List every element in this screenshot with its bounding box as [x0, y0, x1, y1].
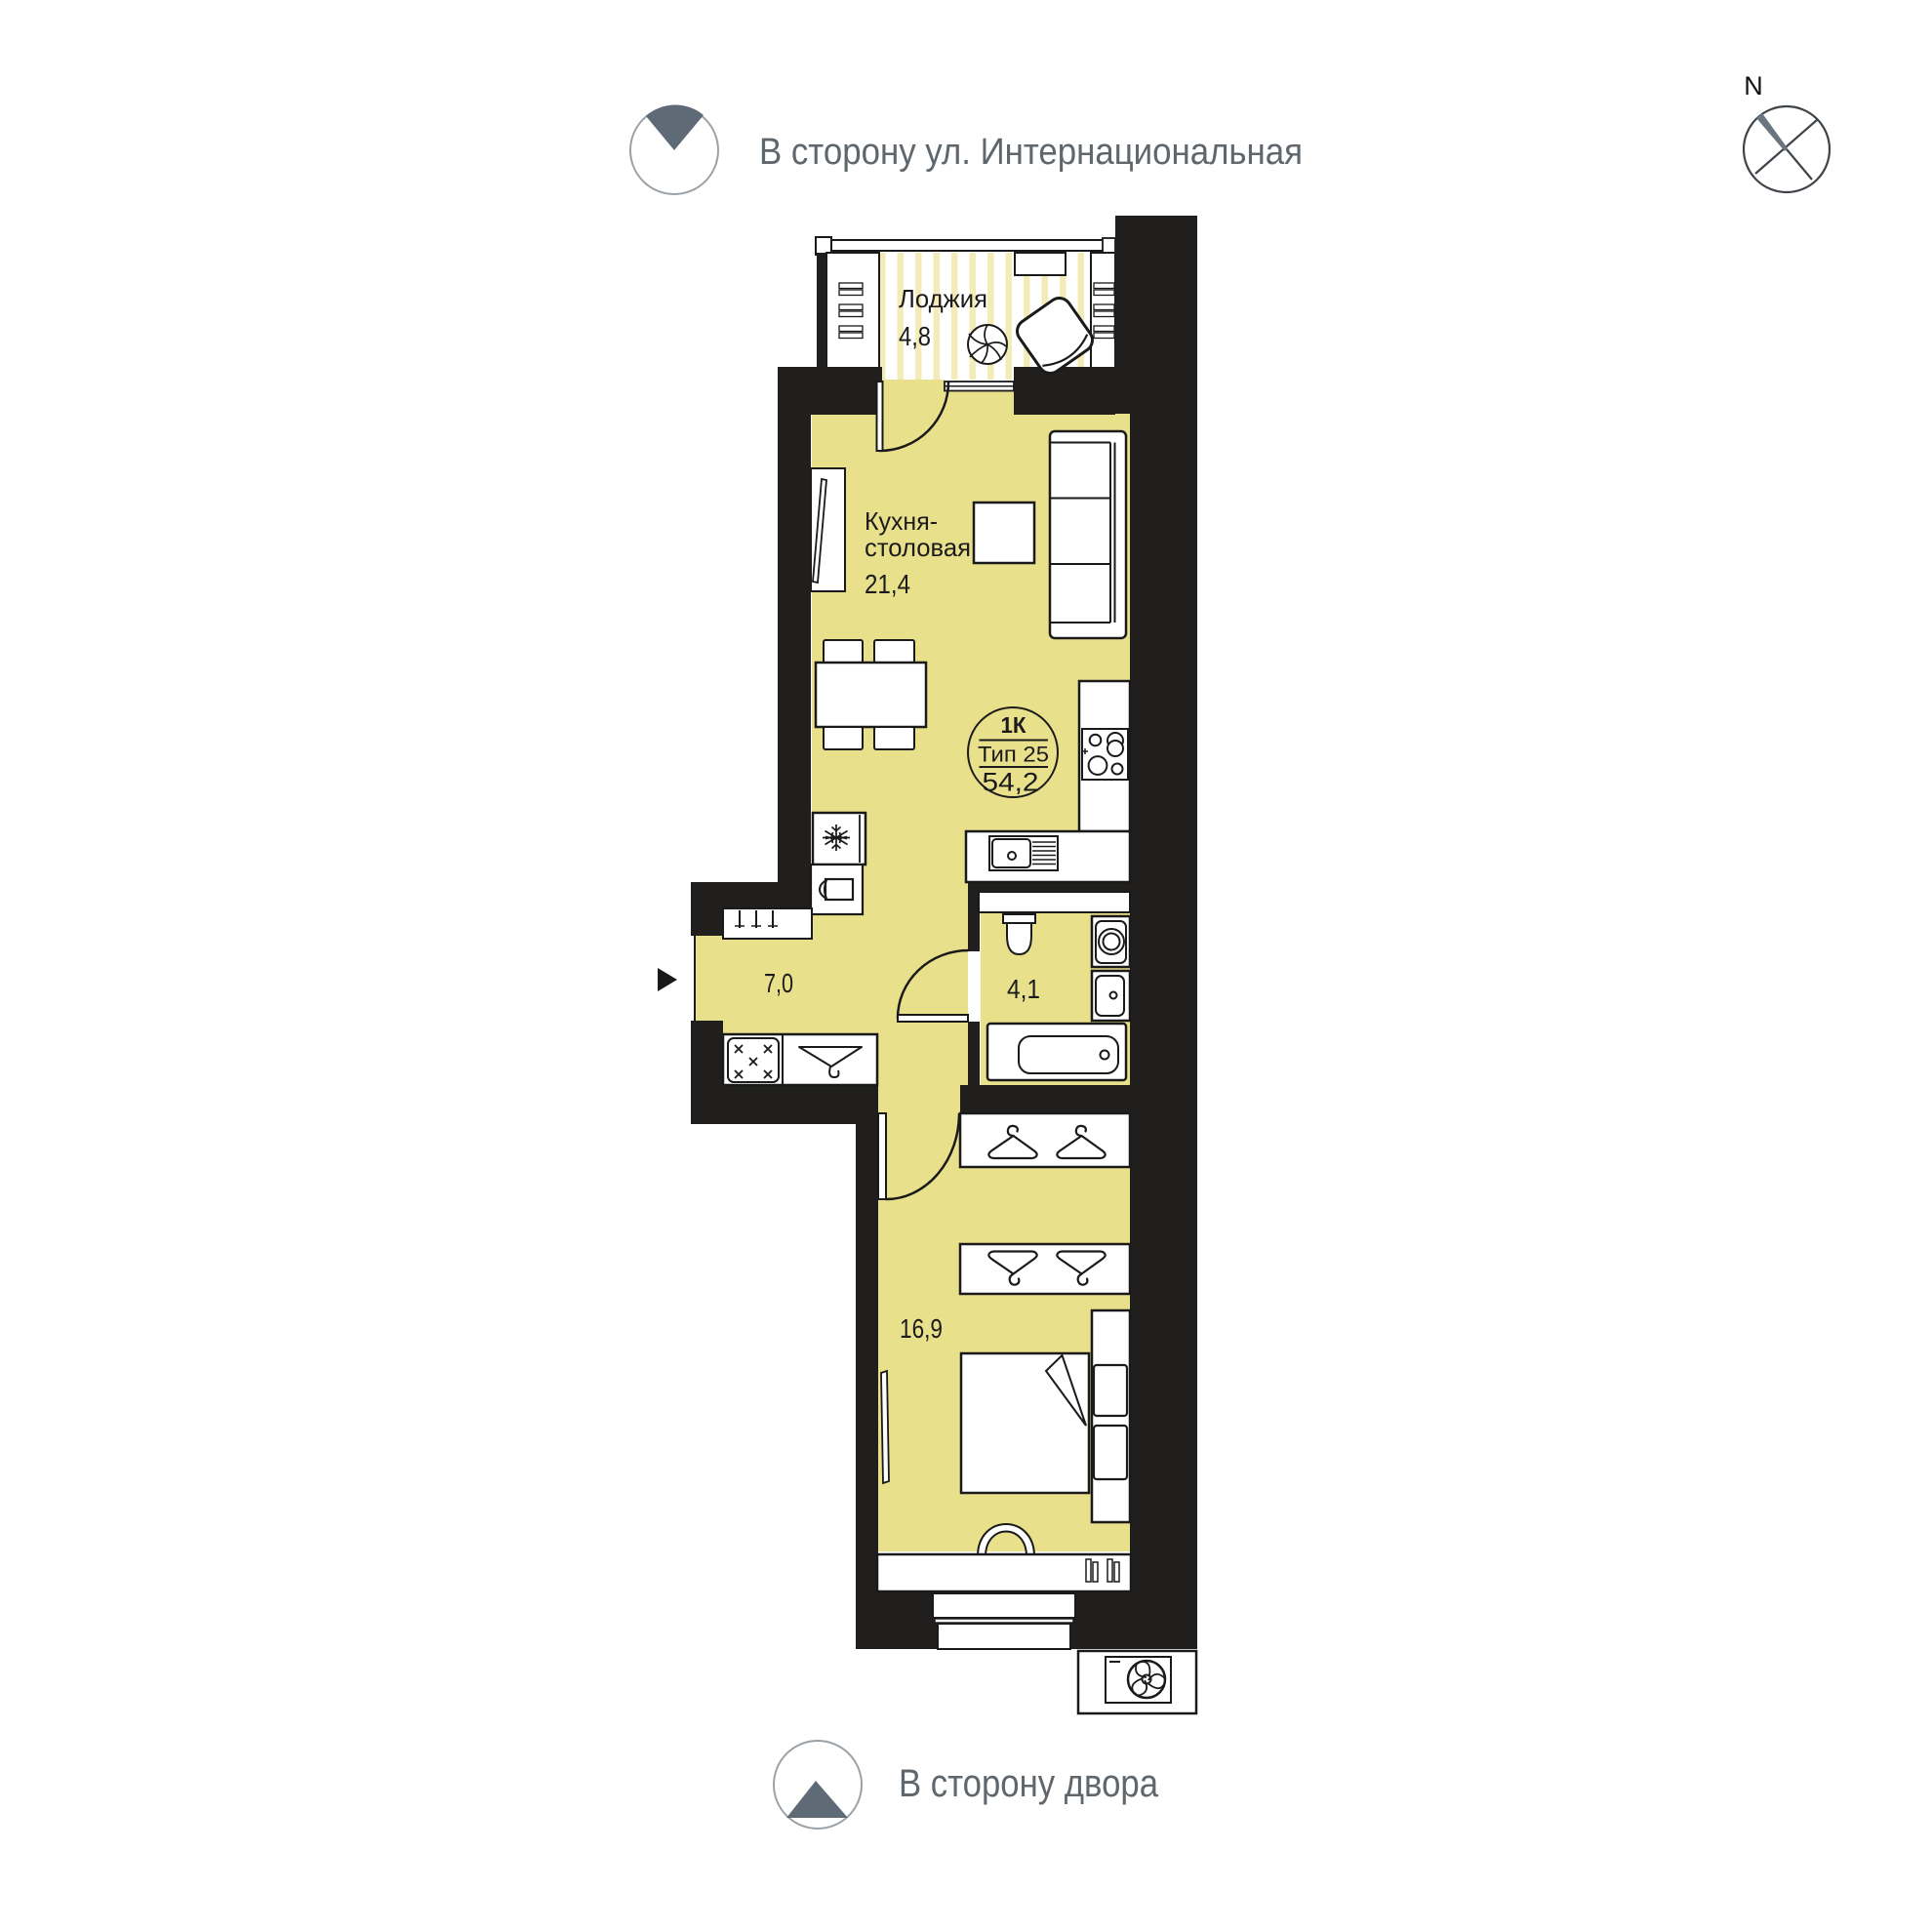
svg-text:4,1: 4,1 — [1007, 974, 1040, 1004]
svg-text:Кухня-: Кухня- — [865, 506, 938, 536]
svg-text:Тип 25: Тип 25 — [978, 743, 1049, 767]
svg-text:1К: 1К — [1001, 712, 1027, 738]
svg-text:В сторону двора: В сторону двора — [899, 1762, 1159, 1805]
svg-text:21,4: 21,4 — [865, 569, 910, 599]
svg-text:столовая: столовая — [865, 533, 971, 562]
svg-text:16,9: 16,9 — [900, 1313, 943, 1344]
svg-text:N: N — [1744, 71, 1763, 101]
svg-text:54,2: 54,2 — [983, 768, 1039, 797]
svg-text:4,8: 4,8 — [899, 321, 931, 351]
svg-text:Лоджия: Лоджия — [899, 284, 987, 313]
svg-text:В сторону ул. Интернациональна: В сторону ул. Интернациональная — [759, 132, 1303, 173]
svg-text:7,0: 7,0 — [764, 968, 793, 998]
